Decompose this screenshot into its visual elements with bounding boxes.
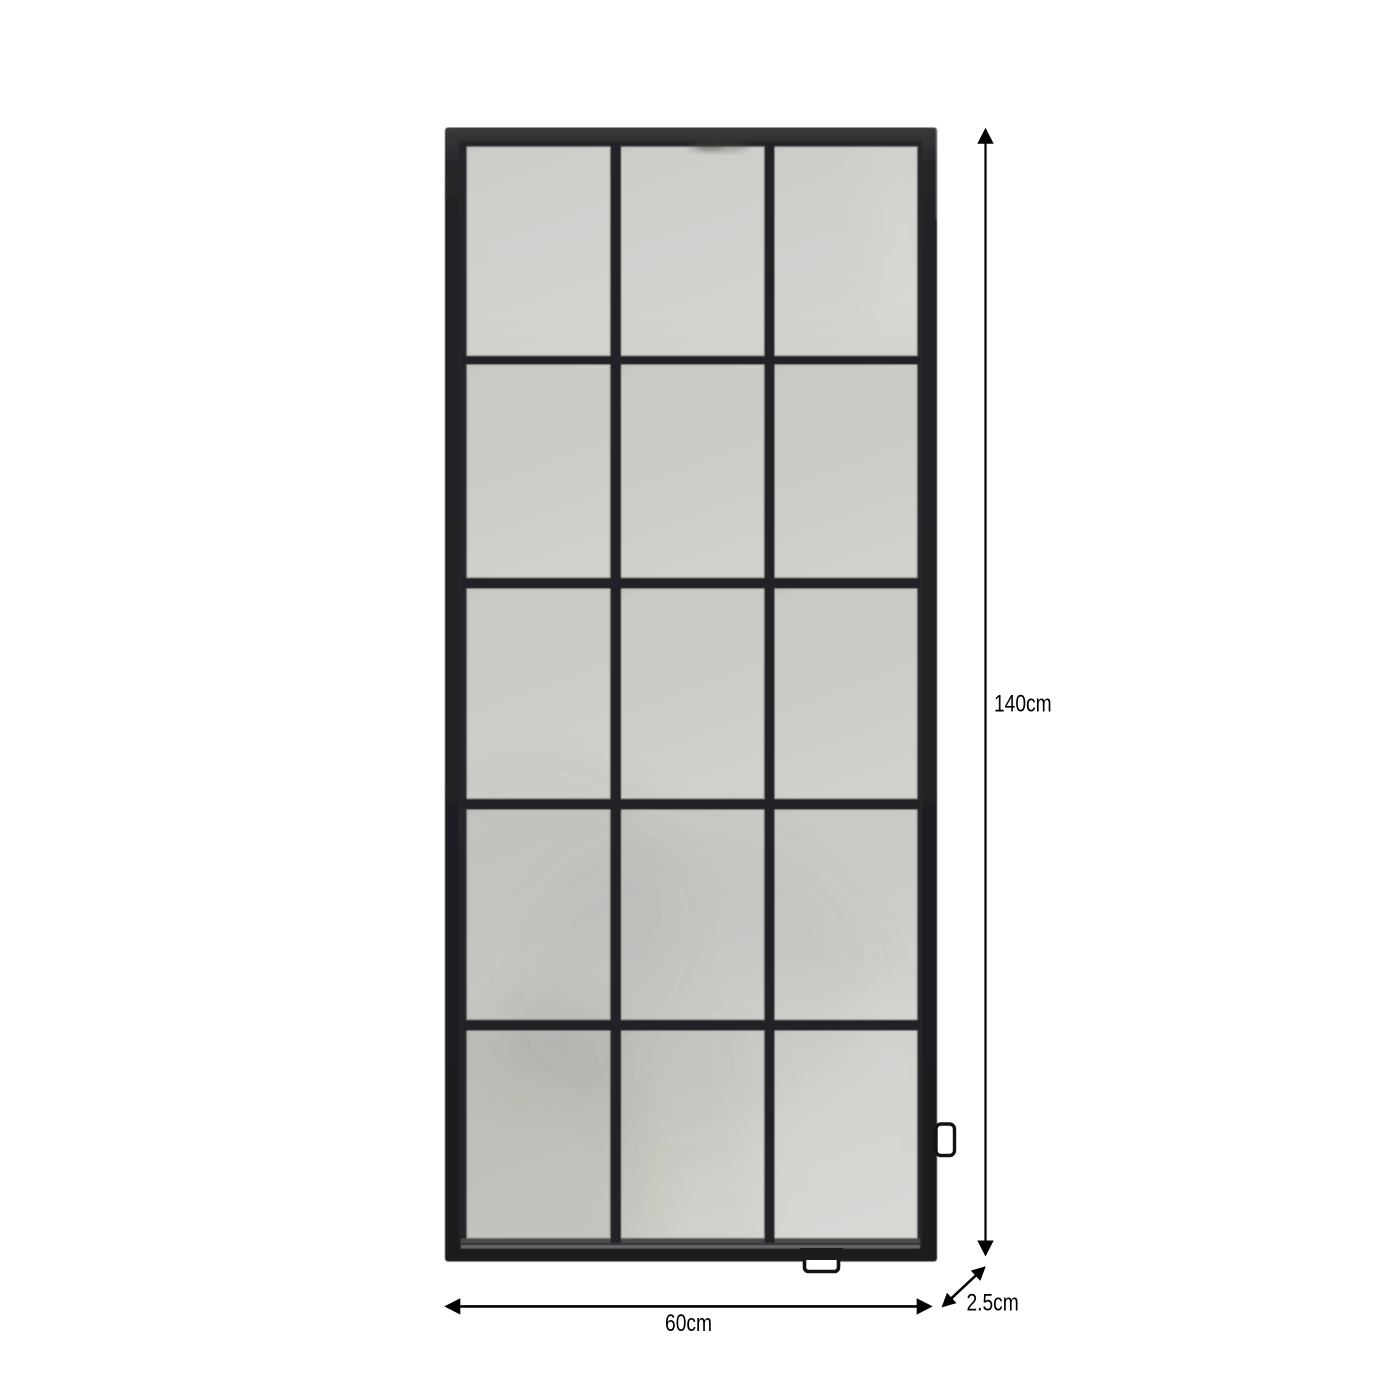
svg-text:60cm: 60cm xyxy=(665,1309,712,1337)
svg-text:140cm: 140cm xyxy=(994,689,1052,717)
svg-text:2.5cm: 2.5cm xyxy=(967,1288,1019,1316)
